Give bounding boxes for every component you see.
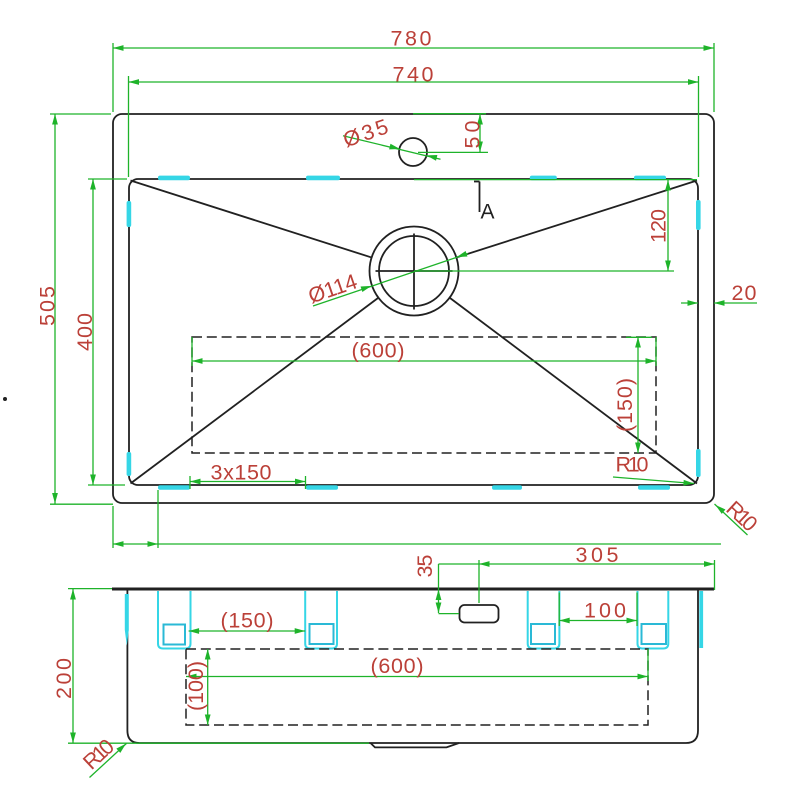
svg-text:R10: R10: [616, 453, 649, 477]
svg-text:(150): (150): [613, 378, 637, 432]
svg-text:780: 780: [391, 27, 432, 51]
svg-text:505: 505: [36, 286, 60, 326]
svg-text:305: 305: [576, 543, 619, 567]
svg-text:100: 100: [584, 599, 626, 623]
svg-text:740: 740: [393, 63, 434, 87]
svg-text:(600): (600): [371, 654, 424, 678]
svg-text:(600): (600): [352, 339, 405, 363]
svg-text:(100): (100): [184, 661, 208, 711]
svg-text:35: 35: [413, 554, 437, 577]
svg-text:50: 50: [461, 120, 485, 148]
svg-text:R10: R10: [722, 496, 763, 536]
svg-text:(150): (150): [221, 609, 274, 633]
svg-text:120: 120: [647, 209, 671, 243]
svg-text:Ø35: Ø35: [340, 115, 391, 153]
svg-text:3x150: 3x150: [211, 461, 272, 485]
svg-text:20: 20: [732, 281, 757, 305]
svg-text:R10: R10: [78, 734, 119, 774]
svg-text:200: 200: [52, 658, 76, 699]
svg-text:Ø114: Ø114: [305, 269, 360, 308]
svg-text:A: A: [481, 201, 495, 224]
svg-text:400: 400: [73, 313, 97, 351]
